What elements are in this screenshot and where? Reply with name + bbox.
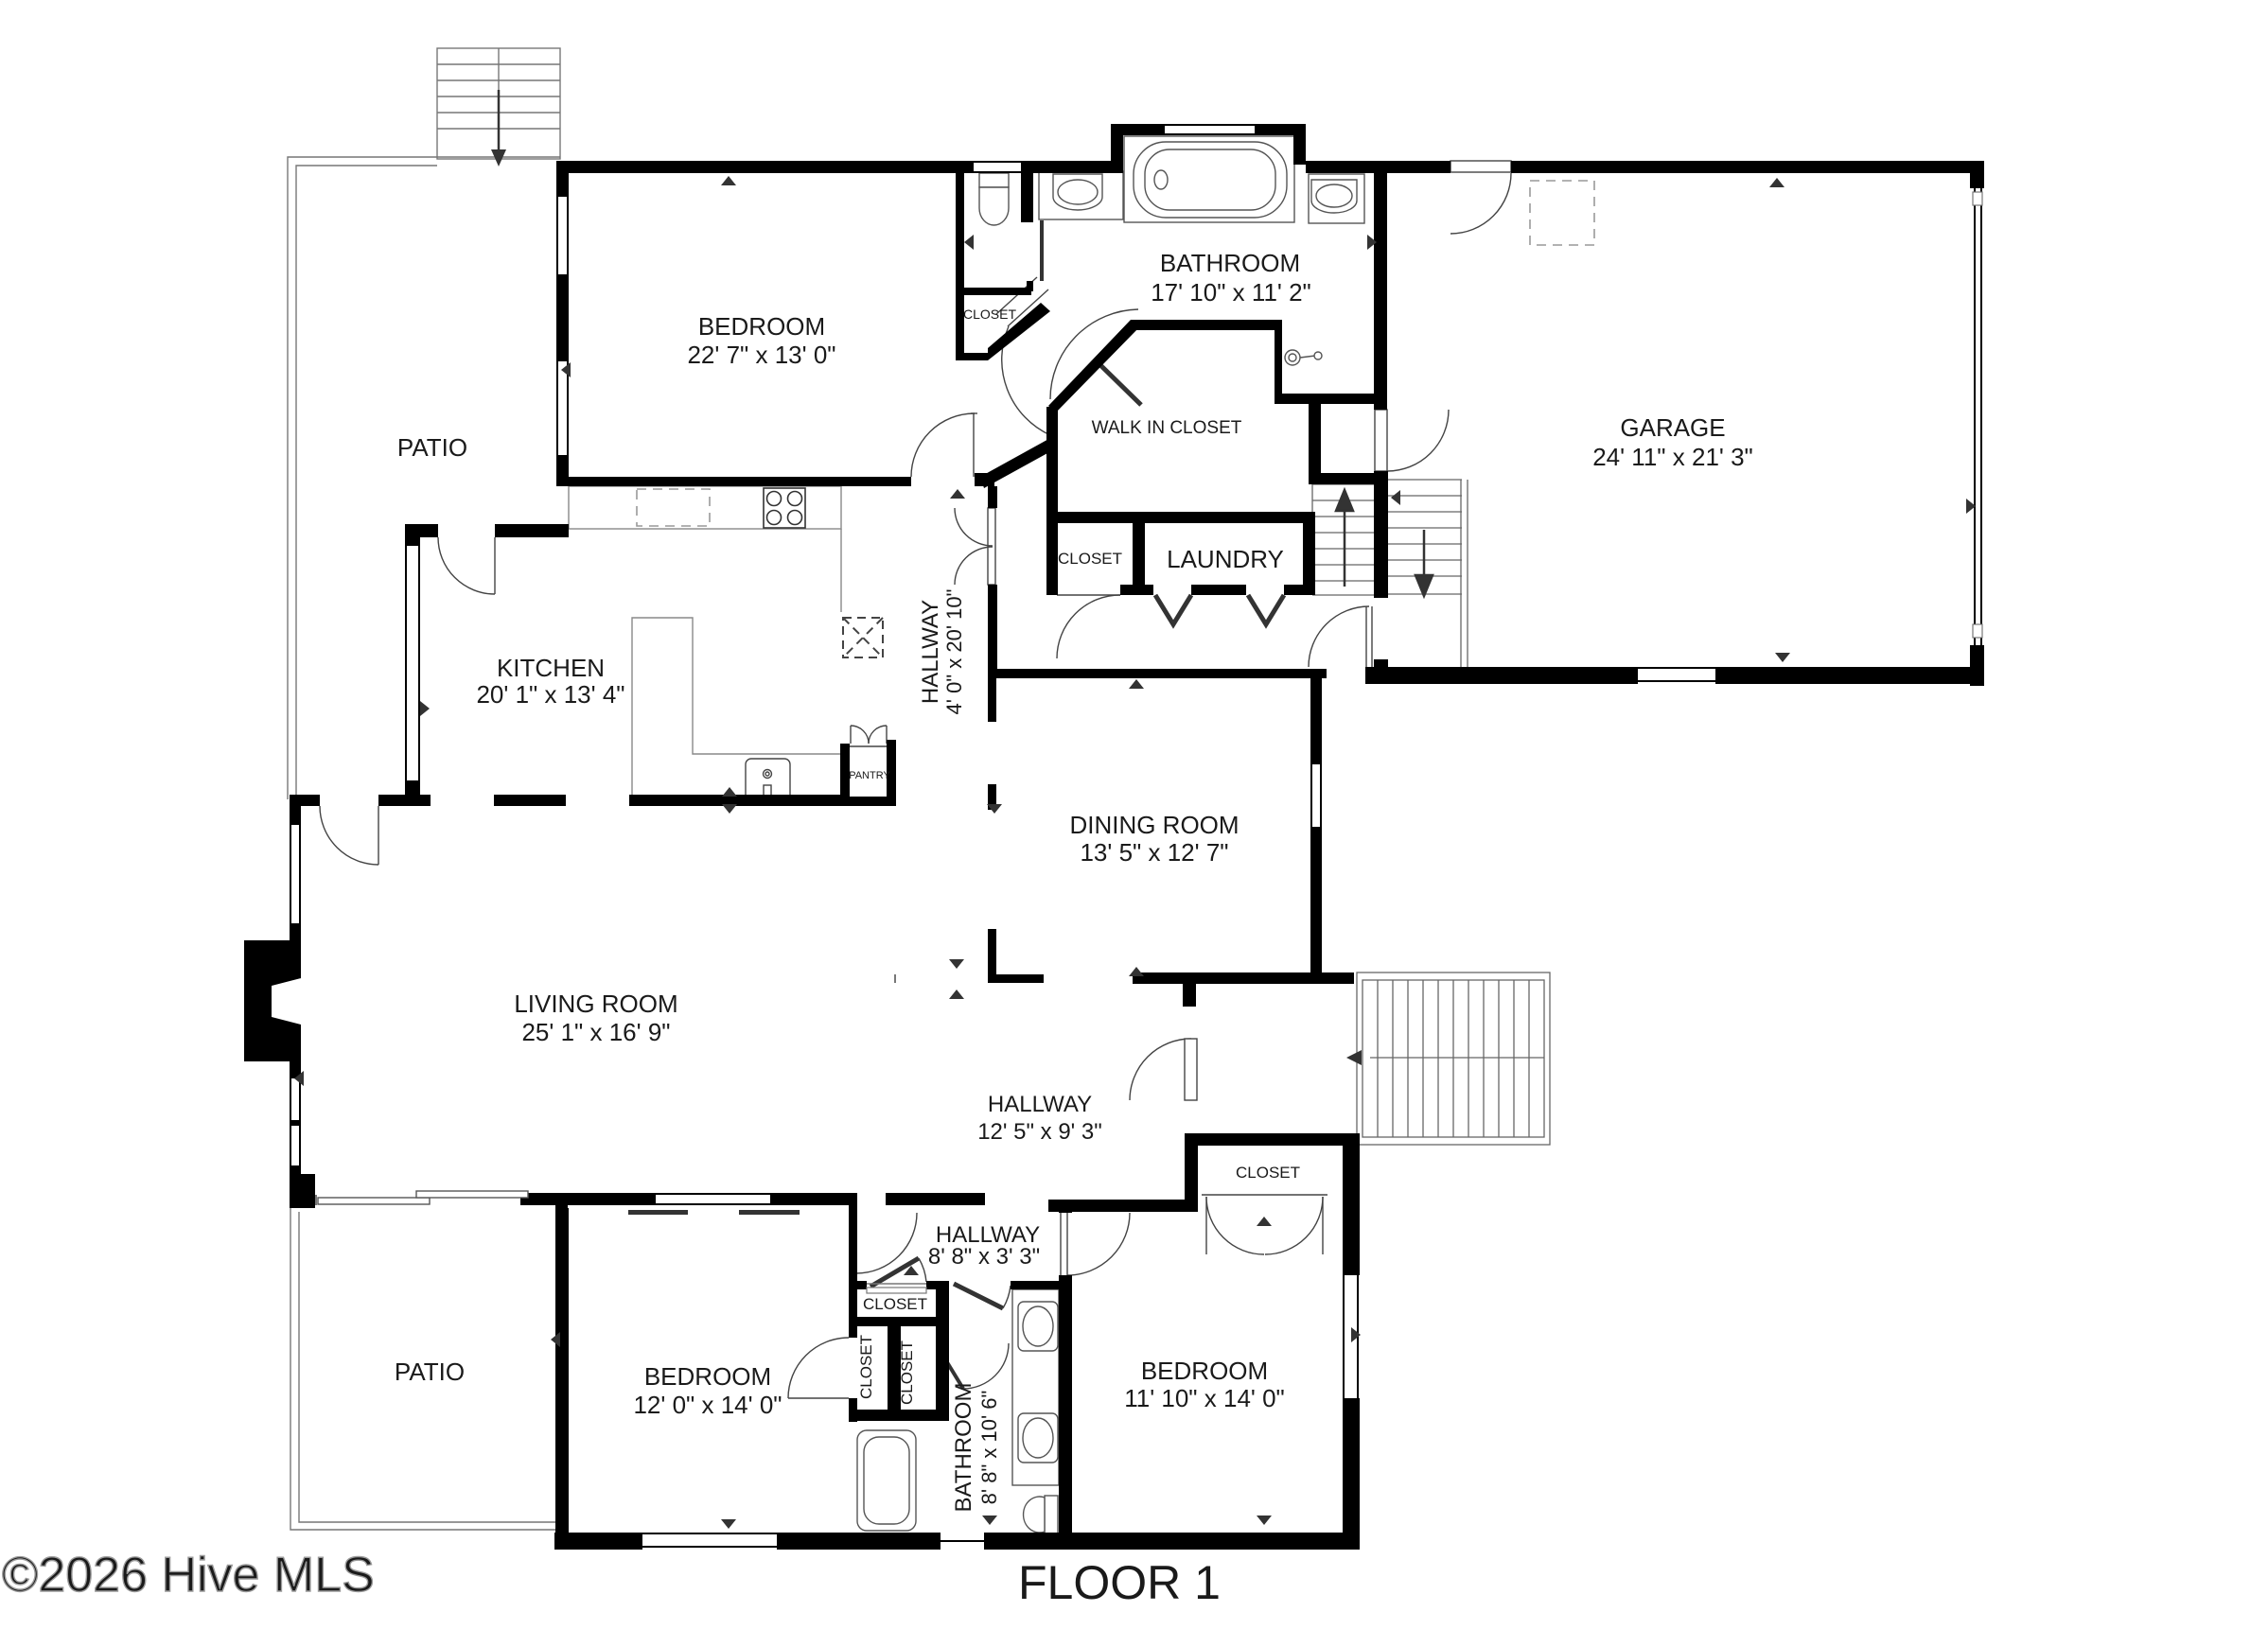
svg-text:25' 1" x 16' 9": 25' 1" x 16' 9" [521, 1018, 670, 1046]
svg-text:CLOSET: CLOSET [863, 1295, 927, 1313]
svg-text:CLOSET: CLOSET [1236, 1164, 1300, 1182]
svg-text:24' 11" x 21' 3": 24' 11" x 21' 3" [1592, 443, 1753, 471]
svg-text:BEDROOM: BEDROOM [698, 312, 825, 341]
svg-text:WALK IN CLOSET: WALK IN CLOSET [1092, 418, 1242, 438]
svg-text:FLOOR 1: FLOOR 1 [1018, 1556, 1221, 1609]
svg-text:8' 8" x 10' 6": 8' 8" x 10' 6" [977, 1391, 1001, 1505]
svg-text:GARAGE: GARAGE [1620, 413, 1725, 442]
svg-text:PATIO: PATIO [395, 1358, 465, 1386]
svg-text:17' 10" x 11' 2": 17' 10" x 11' 2" [1151, 278, 1311, 307]
svg-text:LIVING ROOM: LIVING ROOM [514, 990, 677, 1018]
svg-text:©2026 Hive MLS: ©2026 Hive MLS [2, 1548, 375, 1603]
svg-text:LAUNDRY: LAUNDRY [1167, 545, 1284, 573]
svg-text:PANTRY: PANTRY [849, 770, 890, 781]
svg-text:HALLWAY: HALLWAY [988, 1092, 1092, 1117]
svg-text:CLOSET: CLOSET [1058, 550, 1122, 568]
svg-text:DINING ROOM: DINING ROOM [1069, 811, 1239, 839]
svg-text:KITCHEN: KITCHEN [497, 654, 605, 682]
svg-text:20' 1" x 13' 4": 20' 1" x 13' 4" [476, 680, 624, 709]
svg-text:22' 7" x 13' 0": 22' 7" x 13' 0" [687, 341, 835, 369]
svg-text:BATHROOM: BATHROOM [1160, 249, 1300, 277]
svg-text:13' 5" x 12' 7": 13' 5" x 12' 7" [1080, 838, 1228, 867]
svg-text:12' 5" x 9' 3": 12' 5" x 9' 3" [977, 1119, 1102, 1145]
svg-text:PATIO: PATIO [397, 433, 467, 462]
svg-text:12' 0" x 14' 0": 12' 0" x 14' 0" [633, 1391, 782, 1419]
svg-text:11' 10" x 14' 0": 11' 10" x 14' 0" [1124, 1384, 1285, 1412]
svg-text:BEDROOM: BEDROOM [644, 1362, 771, 1391]
svg-text:CLOSET: CLOSET [857, 1335, 875, 1399]
svg-text:CLOSET: CLOSET [898, 1340, 916, 1405]
svg-text:BEDROOM: BEDROOM [1141, 1357, 1268, 1385]
svg-text:4' 0" x 20' 10": 4' 0" x 20' 10" [942, 589, 966, 715]
svg-text:BATHROOM: BATHROOM [951, 1383, 976, 1513]
svg-text:8' 8" x 3' 3": 8' 8" x 3' 3" [928, 1244, 1040, 1270]
svg-text:CLOSET: CLOSET [963, 307, 1016, 322]
svg-text:HALLWAY: HALLWAY [918, 600, 943, 704]
